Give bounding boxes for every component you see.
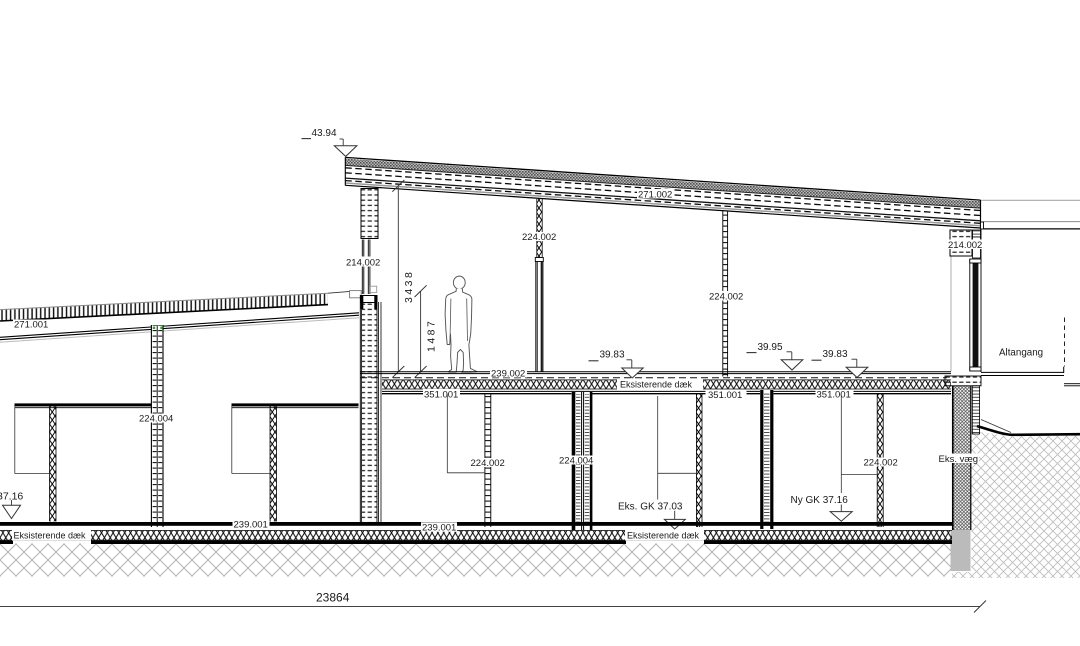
svg-text:3438: 3438 — [403, 270, 415, 303]
svg-text:Altangang: Altangang — [999, 348, 1043, 359]
svg-text:224.004: 224.004 — [559, 456, 593, 467]
svg-text:23864: 23864 — [316, 591, 350, 605]
svg-text:39.95: 39.95 — [758, 342, 783, 353]
svg-text:43.94: 43.94 — [312, 128, 337, 139]
svg-text:1487: 1487 — [426, 319, 438, 352]
svg-text:Eksisterende dæk: Eksisterende dæk — [627, 530, 700, 540]
svg-text:224.002: 224.002 — [864, 458, 898, 469]
svg-text:239.001: 239.001 — [234, 519, 268, 530]
svg-text:Eksisterende dæk: Eksisterende dæk — [14, 530, 87, 540]
svg-text:39.83: 39.83 — [823, 349, 848, 360]
svg-text:351.001: 351.001 — [424, 389, 458, 400]
svg-text:351.001: 351.001 — [708, 390, 742, 401]
svg-text:351.001: 351.001 — [817, 390, 851, 401]
svg-text:Eks. GK 37.03: Eks. GK 37.03 — [618, 502, 683, 513]
svg-text:224.004: 224.004 — [139, 414, 173, 425]
svg-text:224.002: 224.002 — [522, 232, 556, 243]
svg-text:39.83: 39.83 — [600, 350, 625, 361]
svg-text:271.001: 271.001 — [14, 320, 48, 331]
svg-text:224.002: 224.002 — [709, 292, 743, 303]
svg-text:224.002: 224.002 — [471, 458, 505, 469]
svg-text:Ny GK 37.16: Ny GK 37.16 — [791, 495, 849, 506]
svg-text:214.002: 214.002 — [948, 240, 982, 251]
svg-text:Eksisterende dæk: Eksisterende dæk — [620, 380, 693, 390]
svg-text:214.002: 214.002 — [346, 258, 380, 269]
svg-text:Eks. væg: Eks. væg — [939, 454, 979, 465]
svg-text:271.002: 271.002 — [638, 190, 672, 201]
svg-text:239.001: 239.001 — [422, 523, 456, 534]
svg-text:239.002: 239.002 — [491, 368, 525, 379]
